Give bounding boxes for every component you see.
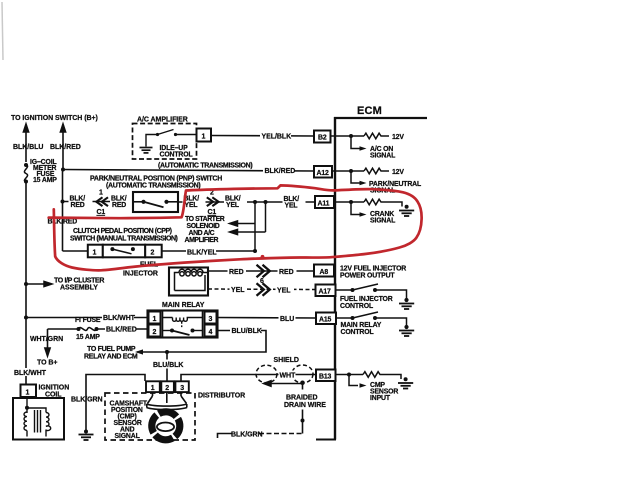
svg-text:SWITCH (MANUAL TRANSMISSION): SWITCH (MANUAL TRANSMISSION) bbox=[70, 236, 178, 243]
svg-text:CLUTCH PEDAL POSITION (CPP): CLUTCH PEDAL POSITION (CPP) bbox=[73, 228, 172, 235]
svg-text:B13: B13 bbox=[319, 374, 332, 381]
svg-text:A15: A15 bbox=[319, 317, 332, 324]
svg-text:2: 2 bbox=[153, 329, 157, 336]
svg-text:2: 2 bbox=[165, 385, 169, 392]
svg-text:MAIN RELAY: MAIN RELAY bbox=[162, 302, 205, 309]
svg-text:MAIN RELAY: MAIN RELAY bbox=[341, 322, 382, 329]
svg-text:1: 1 bbox=[99, 190, 103, 197]
svg-text:YEL: YEL bbox=[277, 288, 291, 295]
svg-text:WHT: WHT bbox=[280, 373, 297, 380]
svg-text:WHT/GRN: WHT/GRN bbox=[30, 336, 63, 343]
svg-text:12V: 12V bbox=[392, 134, 404, 141]
svg-text:1: 1 bbox=[93, 250, 97, 257]
svg-text:RELAY AND ECM: RELAY AND ECM bbox=[84, 354, 138, 361]
svg-text:BLK/RED: BLK/RED bbox=[265, 168, 296, 175]
svg-text:BLK/RED: BLK/RED bbox=[50, 144, 81, 151]
svg-text:RED: RED bbox=[112, 202, 126, 209]
svg-text:POWER OUTPUT: POWER OUTPUT bbox=[340, 273, 395, 280]
svg-text:ASSEMBLY: ASSEMBLY bbox=[60, 285, 98, 292]
svg-text:IGNITION: IGNITION bbox=[39, 385, 70, 392]
svg-text:SIGNAL: SIGNAL bbox=[370, 218, 395, 225]
svg-text:RED: RED bbox=[279, 269, 294, 276]
svg-text:TO IGNITION SWITCH (B+): TO IGNITION SWITCH (B+) bbox=[11, 115, 98, 122]
svg-text:DISTRIBUTOR: DISTRIBUTOR bbox=[198, 393, 245, 400]
svg-text:BLU: BLU bbox=[280, 316, 294, 323]
svg-text:INPUT: INPUT bbox=[370, 395, 391, 402]
svg-text:YEL: YEL bbox=[231, 287, 245, 294]
svg-text:2: 2 bbox=[151, 250, 155, 257]
svg-text:B2: B2 bbox=[318, 135, 327, 142]
svg-text:AND A/C: AND A/C bbox=[189, 230, 215, 237]
svg-text:TO FUEL PUMP: TO FUEL PUMP bbox=[87, 346, 136, 353]
svg-text:ECM: ECM bbox=[357, 105, 382, 117]
svg-text:YEL: YEL bbox=[285, 203, 298, 210]
svg-text:C1: C1 bbox=[97, 209, 106, 216]
svg-text:BRAIDED: BRAIDED bbox=[286, 395, 318, 402]
svg-text:12V FUEL INJECTOR: 12V FUEL INJECTOR bbox=[340, 266, 406, 273]
svg-text:BLK/BLU: BLK/BLU bbox=[13, 144, 43, 151]
svg-text:1: 1 bbox=[26, 390, 30, 397]
svg-text:15 AMP: 15 AMP bbox=[33, 177, 57, 184]
svg-text:INJECTOR: INJECTOR bbox=[123, 271, 158, 278]
svg-text:A11: A11 bbox=[318, 201, 330, 208]
svg-text:SIGNAL: SIGNAL bbox=[370, 153, 395, 160]
svg-text:YEL/BLK: YEL/BLK bbox=[262, 134, 292, 141]
svg-text:TO I/P CLUSTER: TO I/P CLUSTER bbox=[54, 278, 104, 285]
svg-text:YEL: YEL bbox=[226, 202, 239, 209]
svg-text:TO STARTER: TO STARTER bbox=[185, 216, 225, 223]
svg-text:BLU/BLK: BLU/BLK bbox=[153, 362, 183, 369]
svg-text:CONTROL: CONTROL bbox=[160, 152, 193, 159]
svg-text:FUEL INJECTOR: FUEL INJECTOR bbox=[340, 296, 393, 303]
svg-text:BLK/RED: BLK/RED bbox=[48, 219, 78, 226]
svg-text:SHIELD: SHIELD bbox=[274, 357, 299, 364]
svg-text:BLK/WHT: BLK/WHT bbox=[103, 315, 136, 322]
svg-text:DRAIN WIRE: DRAIN WIRE bbox=[284, 402, 326, 409]
svg-text:(AUTOMATIC TRANSMISSION): (AUTOMATIC TRANSMISSION) bbox=[158, 163, 252, 170]
svg-text:RED: RED bbox=[229, 269, 244, 276]
svg-text:A17: A17 bbox=[319, 289, 332, 296]
svg-text:6: 6 bbox=[260, 278, 264, 285]
svg-text:1: 1 bbox=[202, 134, 206, 141]
svg-text:FI FUSE: FI FUSE bbox=[75, 317, 101, 324]
svg-text:PARK/NEUTRAL POSITION (PNP) SW: PARK/NEUTRAL POSITION (PNP) SWITCH bbox=[90, 176, 222, 183]
svg-text:BLK/YEL: BLK/YEL bbox=[187, 250, 217, 257]
svg-text:CONTROL: CONTROL bbox=[341, 329, 374, 336]
svg-text:A/C AMPLIFIER: A/C AMPLIFIER bbox=[137, 117, 188, 124]
svg-text:3: 3 bbox=[209, 316, 213, 323]
svg-text:TO B+: TO B+ bbox=[37, 360, 57, 367]
svg-text:RED: RED bbox=[71, 202, 85, 209]
svg-text:SIGNAL: SIGNAL bbox=[115, 433, 140, 440]
svg-text:(AUTOMATIC TRANSMISSION): (AUTOMATIC TRANSMISSION) bbox=[106, 183, 200, 190]
svg-text:A8: A8 bbox=[320, 269, 329, 276]
svg-text:C1: C1 bbox=[208, 209, 217, 216]
svg-text:3: 3 bbox=[180, 385, 184, 392]
svg-text:4: 4 bbox=[209, 329, 213, 336]
svg-text:12V: 12V bbox=[392, 169, 404, 176]
svg-text:BLK/RED: BLK/RED bbox=[106, 327, 137, 334]
svg-text:A12: A12 bbox=[317, 170, 330, 177]
svg-text:1: 1 bbox=[151, 385, 155, 392]
svg-text:AMPLIFIER: AMPLIFIER bbox=[185, 237, 219, 244]
svg-text:BLK/WHT: BLK/WHT bbox=[14, 370, 47, 377]
svg-text:SOLENOID: SOLENOID bbox=[187, 223, 220, 230]
svg-text:1: 1 bbox=[153, 316, 157, 323]
svg-text:BLK/GRN: BLK/GRN bbox=[231, 432, 263, 439]
svg-text:CONTROL: CONTROL bbox=[340, 303, 373, 310]
svg-text:YEL: YEL bbox=[185, 202, 198, 209]
svg-text:BLU/BLK: BLU/BLK bbox=[232, 328, 262, 335]
svg-text:15 AMP: 15 AMP bbox=[76, 334, 100, 341]
